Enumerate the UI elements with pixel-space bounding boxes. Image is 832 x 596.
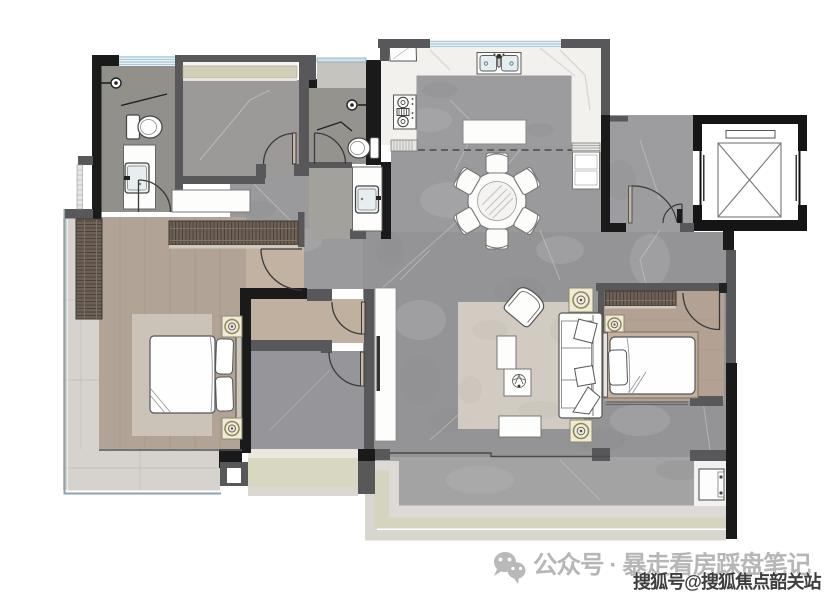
svg-text:搜狐号@搜狐焦点韶关站: 搜狐号@搜狐焦点韶关站 (633, 571, 822, 592)
